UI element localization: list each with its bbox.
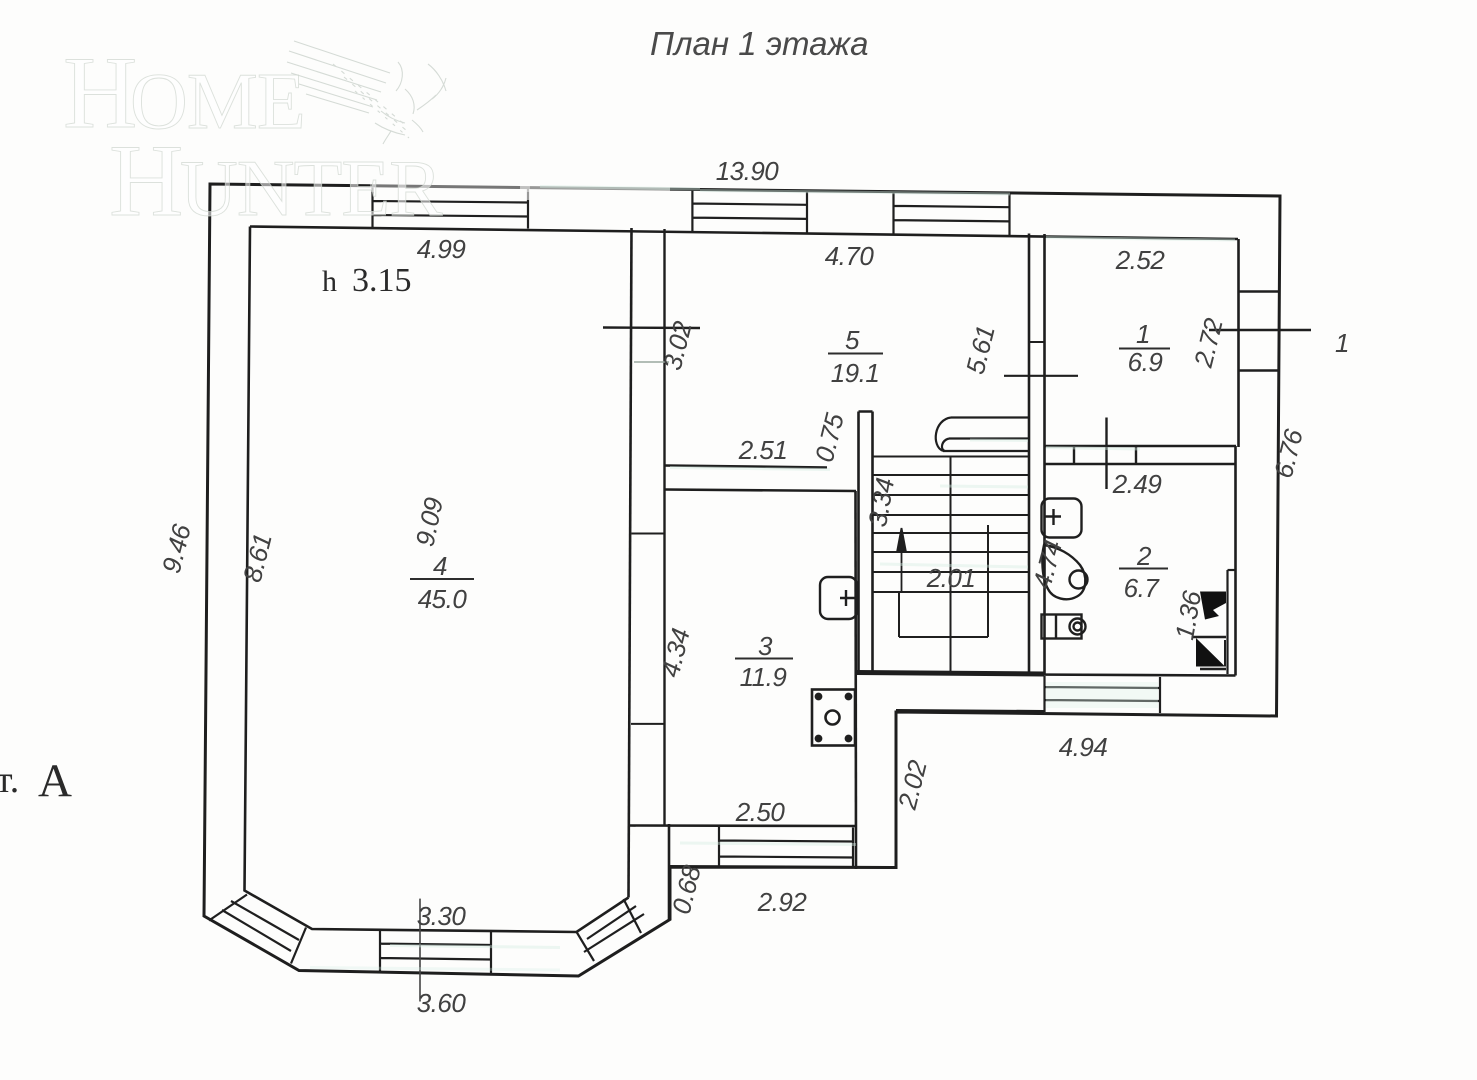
svg-text:2.52: 2.52	[1115, 245, 1166, 275]
svg-text:4.94: 4.94	[1059, 732, 1108, 762]
svg-text:2.51: 2.51	[738, 435, 788, 465]
svg-text:2.92: 2.92	[757, 887, 808, 917]
svg-text:3.60: 3.60	[417, 988, 467, 1018]
svg-text:4.99: 4.99	[417, 234, 466, 264]
svg-text:План 1 этажа: План 1 этажа	[650, 25, 868, 62]
svg-text:А: А	[38, 755, 72, 807]
svg-text:3: 3	[758, 631, 773, 661]
svg-text:3.30: 3.30	[417, 901, 467, 931]
svg-text:45.0: 45.0	[418, 584, 468, 614]
svg-text:2.01: 2.01	[926, 563, 976, 593]
svg-text:H: H	[109, 124, 183, 238]
svg-text:6.9: 6.9	[1128, 347, 1163, 377]
svg-text:h: h	[322, 265, 337, 298]
svg-text:1: 1	[1136, 319, 1150, 349]
svg-text:2.50: 2.50	[735, 797, 786, 827]
svg-text:1: 1	[1335, 328, 1349, 358]
svg-text:2.49: 2.49	[1112, 469, 1162, 499]
svg-text:т.: т.	[0, 759, 19, 801]
svg-text:4: 4	[433, 551, 447, 581]
svg-text:13.90: 13.90	[716, 156, 780, 186]
svg-text:5: 5	[845, 325, 860, 355]
svg-text:2: 2	[1136, 541, 1152, 571]
svg-text:UNTER: UNTER	[180, 145, 443, 233]
svg-text:4.70: 4.70	[825, 241, 875, 271]
svg-text:11.9: 11.9	[740, 662, 787, 692]
svg-text:19.1: 19.1	[831, 358, 880, 388]
svg-text:6.7: 6.7	[1124, 573, 1161, 603]
svg-text:3.15: 3.15	[352, 262, 412, 299]
